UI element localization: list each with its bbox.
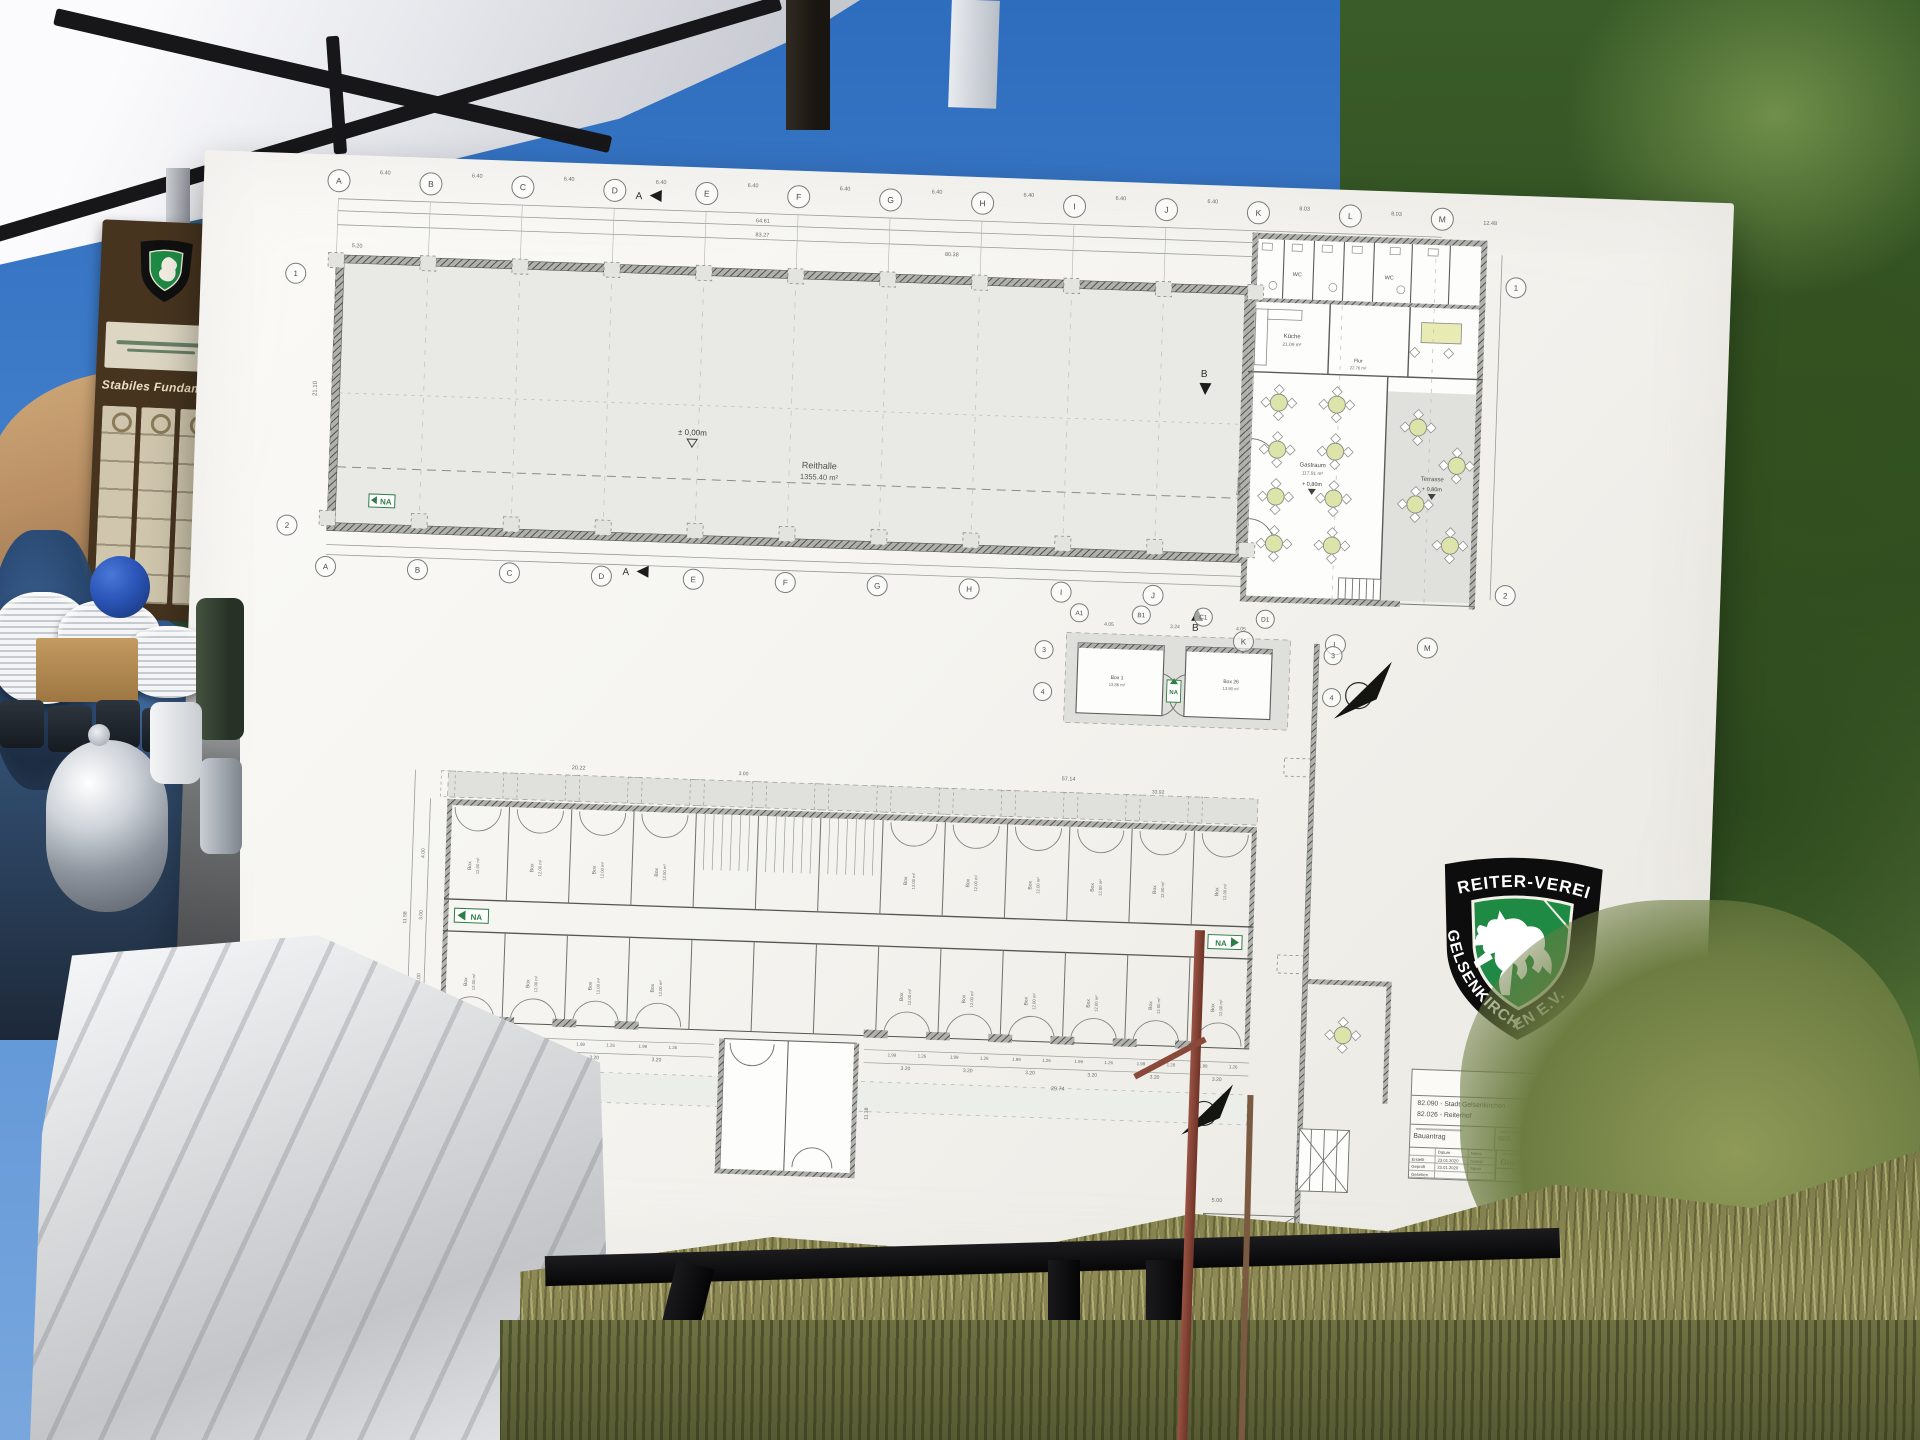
tack-room-shelf bbox=[774, 816, 776, 872]
grid-bubble: A bbox=[315, 556, 336, 577]
stall-wall bbox=[502, 933, 505, 1023]
flag-pole bbox=[948, 0, 1000, 109]
stall-door-arc bbox=[946, 1013, 993, 1038]
dim-label: 6.40 bbox=[1207, 199, 1218, 205]
stall-area: 12.00 m² bbox=[1222, 883, 1228, 900]
table-with-chairs bbox=[1324, 1017, 1361, 1054]
outdoor-boxes: Box 1 13.86 m² Box 26 13.80 m² NA 4.05 3… bbox=[1064, 620, 1393, 733]
tack-room-shelf bbox=[872, 820, 874, 876]
dim-label: 4.00 bbox=[420, 848, 426, 858]
dim-label: 6.40 bbox=[656, 180, 667, 186]
kitchen-counter bbox=[1254, 309, 1268, 365]
horseshoe-icon bbox=[111, 412, 132, 433]
stall-area: 12.00 m² bbox=[533, 975, 539, 992]
terrace-floor bbox=[1380, 391, 1476, 603]
round-table-icon bbox=[1409, 419, 1427, 437]
room-label: WC bbox=[1385, 275, 1394, 281]
grid-bubble: C bbox=[512, 176, 535, 199]
grid-bubble: K bbox=[1233, 631, 1254, 652]
emergency-exit-marker: NA bbox=[454, 908, 488, 923]
grid-line bbox=[704, 212, 706, 268]
stall-label: Box bbox=[1086, 998, 1092, 1007]
grid-bubble: 4 bbox=[1322, 688, 1341, 707]
column-pilaster bbox=[871, 529, 888, 545]
stall-label: Box bbox=[588, 981, 594, 990]
dim-label: 83.27 bbox=[755, 232, 769, 238]
column-pilaster bbox=[963, 533, 980, 549]
grid-line bbox=[612, 208, 614, 264]
wc-fixture-icon bbox=[1352, 246, 1362, 253]
grid-letter: D bbox=[598, 572, 604, 581]
grid-letter: D bbox=[612, 185, 618, 195]
hall-level: ± 0,00m bbox=[678, 428, 707, 438]
stall-label: Box bbox=[467, 861, 473, 870]
dim-label: 1.26 bbox=[669, 1045, 678, 1050]
stall-door-arc bbox=[1133, 1020, 1180, 1045]
dim-label: 1.26 bbox=[1042, 1058, 1051, 1063]
column-pilaster bbox=[420, 256, 437, 272]
blue-jug bbox=[90, 556, 150, 618]
grid-bubble: J bbox=[1143, 585, 1164, 606]
grid-bubble: F bbox=[775, 572, 796, 593]
stall-wall bbox=[1125, 955, 1128, 1045]
dimension-line bbox=[1490, 255, 1502, 600]
stall-door-arc bbox=[1202, 833, 1249, 858]
stall-label: Box bbox=[1148, 1001, 1154, 1010]
stall-wall bbox=[1187, 957, 1190, 1047]
sink-icon bbox=[1397, 286, 1405, 294]
wc-fixture-icon bbox=[1322, 245, 1332, 252]
room-area: 13.80 m² bbox=[1222, 686, 1239, 692]
stall-wall bbox=[755, 816, 758, 910]
column-pilaster bbox=[788, 268, 805, 284]
grid-bubble: L bbox=[1339, 205, 1362, 228]
stall-door-arc bbox=[454, 807, 501, 832]
stall-door-arc bbox=[1070, 1018, 1117, 1043]
sink-icon bbox=[1269, 281, 1277, 289]
cardboard-box bbox=[36, 638, 138, 702]
grid-bubble: G bbox=[879, 189, 902, 212]
grid-letter: K bbox=[1241, 637, 1247, 646]
wc-fixture-icon bbox=[1390, 247, 1400, 254]
svg-text:A: A bbox=[622, 567, 629, 578]
column-pilaster bbox=[1238, 542, 1255, 558]
stall-door-arc bbox=[517, 809, 564, 834]
room-label: Flur bbox=[1354, 358, 1363, 364]
stall-wall bbox=[880, 820, 883, 914]
stall-label: Box bbox=[1152, 885, 1158, 894]
dim-label: 3.20 bbox=[651, 1057, 661, 1063]
grid-line bbox=[796, 215, 798, 271]
white-pitcher bbox=[150, 702, 202, 784]
svg-text:NA: NA bbox=[1169, 690, 1179, 696]
tack-room-shelf bbox=[846, 819, 848, 875]
round-table-icon bbox=[1334, 1026, 1352, 1044]
round-table-icon bbox=[1323, 537, 1341, 555]
stall-door-arc bbox=[1077, 829, 1124, 854]
dim-label: 1.99 bbox=[888, 1052, 897, 1057]
stall-wall bbox=[693, 814, 696, 908]
stall-wall bbox=[1004, 824, 1007, 918]
stall-label: Box bbox=[899, 992, 905, 1001]
wall-stub bbox=[864, 1030, 888, 1039]
grid-bubble: A bbox=[328, 169, 351, 192]
round-table-icon bbox=[1448, 457, 1466, 475]
grid-bubble: G bbox=[867, 575, 888, 596]
fence-gate-grid bbox=[1297, 1129, 1349, 1193]
grid-letter: I bbox=[1060, 588, 1063, 597]
stall-wall bbox=[1191, 831, 1194, 925]
stall-wall bbox=[938, 948, 941, 1038]
grid-letter: M bbox=[1439, 214, 1446, 224]
tack-room-shelf bbox=[801, 817, 803, 873]
grid-bubble: M bbox=[1417, 638, 1438, 659]
tack-room-shelf bbox=[837, 819, 839, 875]
grid-letter: H bbox=[966, 585, 972, 594]
emergency-exit-marker: NA bbox=[1208, 934, 1242, 949]
chair-icon bbox=[1338, 1017, 1348, 1027]
stall-door-arc bbox=[890, 822, 937, 847]
grid-letter: I bbox=[1073, 201, 1076, 211]
stall-area: 12.00 m² bbox=[969, 990, 975, 1007]
dim-label: 8.03 bbox=[1299, 206, 1310, 212]
fence-post bbox=[1284, 758, 1311, 777]
room-label: Gastraum bbox=[1299, 462, 1326, 469]
wc-fixture-icon bbox=[1262, 243, 1272, 250]
column-pilaster bbox=[319, 510, 336, 526]
dim-label: 3.20 bbox=[1087, 1072, 1097, 1078]
stall-label: Box bbox=[463, 977, 469, 986]
riding-hall: Reithalle 1355.40 m² ± 0,00m 5.20 21.10 … bbox=[308, 242, 1251, 562]
grid-letter: M bbox=[1424, 644, 1431, 653]
tack-room-shelf bbox=[783, 817, 785, 873]
wall-stub bbox=[1113, 1038, 1137, 1047]
dim-label: 6.40 bbox=[748, 183, 759, 189]
stall-area: 12.00 m² bbox=[911, 872, 917, 889]
tack-room-shelf bbox=[703, 814, 705, 870]
grid-letter: C1 bbox=[1199, 614, 1208, 621]
wc-fixture-icon bbox=[1292, 244, 1302, 251]
column-pilaster bbox=[1064, 278, 1081, 294]
grid-letter: 1 bbox=[293, 269, 298, 278]
room-label: Box 1 bbox=[1111, 675, 1124, 681]
grid-line bbox=[980, 221, 982, 277]
dim-label: 1.99 bbox=[576, 1042, 585, 1047]
tack-room-shelf bbox=[828, 818, 830, 874]
round-table-icon bbox=[1265, 535, 1283, 553]
room-label: Küche bbox=[1284, 334, 1302, 341]
stall-area: 12.00 m² bbox=[1160, 881, 1166, 898]
dim-label: 6.40 bbox=[1023, 193, 1034, 199]
wall-stub bbox=[614, 1021, 638, 1030]
grid-bubble: 2 bbox=[1495, 585, 1516, 606]
stall-area: 12.00 m² bbox=[1218, 999, 1224, 1016]
wc-fixture-icon bbox=[1428, 249, 1438, 256]
hall-area: 1355.40 m² bbox=[800, 472, 839, 482]
grid-line bbox=[1072, 224, 1074, 280]
stall-area: 12.00 m² bbox=[537, 859, 543, 876]
grid-letter: 3 bbox=[1042, 647, 1046, 654]
dim-label: 11.38 bbox=[864, 1107, 870, 1120]
round-table-icon bbox=[1268, 441, 1286, 459]
chair-icon bbox=[1351, 1031, 1361, 1041]
grid-letter: 2 bbox=[1503, 591, 1508, 600]
construction-site-photo: Stabiles Fundament bbox=[0, 0, 1920, 1440]
stall-wall bbox=[813, 944, 816, 1034]
stall-area: 12.00 m² bbox=[658, 979, 664, 996]
grid-letter: E bbox=[704, 189, 710, 199]
grid-letter: F bbox=[796, 192, 802, 202]
tack-room-shelf bbox=[739, 815, 741, 871]
grid-letter: 4 bbox=[1041, 689, 1045, 696]
emergency-exit-marker: NA bbox=[1166, 678, 1181, 702]
round-table-icon bbox=[1328, 396, 1346, 414]
stall-wall bbox=[1000, 950, 1003, 1040]
grid-letter: F bbox=[783, 578, 788, 587]
dim-label: 1.99 bbox=[639, 1044, 648, 1049]
stall-label: Box bbox=[592, 865, 598, 874]
stall-label: Box bbox=[965, 878, 971, 887]
column-pilaster bbox=[696, 265, 713, 281]
column-pilaster bbox=[512, 259, 529, 275]
stall-area: 12.00 m² bbox=[599, 861, 605, 878]
grid-letter: H bbox=[979, 198, 985, 208]
grid-letter: L bbox=[1348, 211, 1353, 221]
grid-bubble: H bbox=[971, 192, 994, 215]
dim-label: 3.00 bbox=[418, 910, 424, 920]
level-label: + 0,80m bbox=[1302, 481, 1323, 488]
stall-label: Box bbox=[654, 867, 660, 876]
round-table-icon bbox=[1325, 490, 1343, 508]
tack-room-shelf bbox=[766, 816, 768, 872]
svg-text:B: B bbox=[1201, 369, 1208, 380]
grid-letter: 1 bbox=[1514, 284, 1519, 293]
room-label: Box 26 bbox=[1223, 679, 1239, 686]
dim-label: 33.92 bbox=[1152, 789, 1165, 795]
grid-letter: D1 bbox=[1261, 616, 1270, 623]
round-table-icon bbox=[1267, 488, 1285, 506]
stall-wall bbox=[876, 946, 879, 1036]
grid-line bbox=[428, 202, 430, 258]
dry-grass-front bbox=[500, 1320, 1920, 1440]
svg-text:A: A bbox=[635, 191, 642, 202]
column-pilaster bbox=[972, 275, 989, 291]
room-area: 22.76 m² bbox=[1350, 365, 1367, 371]
grid-bubble: E bbox=[683, 569, 704, 590]
dim-label: 6.40 bbox=[380, 170, 391, 176]
dim-label: 3.20 bbox=[963, 1068, 973, 1074]
dim-label: 3.20 bbox=[1025, 1070, 1035, 1076]
grid-bubble: A1 bbox=[1070, 603, 1089, 622]
stall-label: Box bbox=[525, 979, 531, 988]
small-pot bbox=[200, 758, 242, 854]
stall-area: 12.00 m² bbox=[973, 874, 979, 891]
stall-area: 12.00 m² bbox=[1098, 879, 1104, 896]
dim-label: 1.26 bbox=[1229, 1064, 1238, 1069]
column-pilaster bbox=[328, 252, 345, 268]
grid-letter: J bbox=[1151, 591, 1155, 600]
dim-label: 57.14 bbox=[1062, 776, 1076, 782]
dim-label: 8.03 bbox=[1391, 211, 1402, 217]
dim-label: 11.58 bbox=[402, 911, 408, 924]
tack-room-shelf bbox=[792, 817, 794, 873]
stall-label: Box bbox=[903, 876, 909, 885]
grid-bubble: 2 bbox=[277, 515, 298, 536]
svg-text:NA: NA bbox=[1215, 939, 1227, 948]
grid-bubble: B bbox=[420, 173, 443, 196]
tack-room-shelf bbox=[854, 819, 856, 875]
stall-area: 12.00 m² bbox=[595, 977, 601, 994]
wall-stub bbox=[1050, 1036, 1074, 1045]
grid-line bbox=[336, 199, 338, 255]
grid-letter: K bbox=[1255, 208, 1261, 218]
dim-label: 5.20 bbox=[352, 243, 363, 249]
horseshoe-icon bbox=[150, 414, 171, 435]
stall-area: 12.00 m² bbox=[475, 857, 481, 874]
column-pilaster bbox=[1247, 284, 1264, 300]
grid-bubble: I bbox=[1063, 195, 1086, 218]
grid-bubble: I bbox=[1051, 582, 1072, 603]
grid-letter: A bbox=[336, 176, 342, 186]
bushes-front-right bbox=[1688, 0, 1920, 1440]
stall-door-arc bbox=[953, 825, 1000, 850]
section-marker-a-top: A bbox=[635, 189, 661, 203]
mug bbox=[0, 700, 44, 748]
grid-letter: B bbox=[428, 179, 434, 189]
stall-label: Box bbox=[1090, 883, 1096, 892]
room-area: 21.09 m² bbox=[1282, 342, 1302, 349]
grid-bubble: D bbox=[603, 179, 626, 202]
room-label: Terrasse bbox=[1421, 477, 1445, 484]
fence-post bbox=[1277, 955, 1304, 974]
dim-label: 12.48 bbox=[1483, 221, 1497, 227]
stall-area: 12.00 m² bbox=[1093, 995, 1099, 1012]
round-table-icon bbox=[1326, 443, 1344, 461]
dim-label: 6.40 bbox=[472, 173, 483, 179]
hall-label: Reithalle bbox=[802, 460, 837, 471]
grid-letter: J bbox=[1164, 205, 1169, 215]
grid-letter: A1 bbox=[1075, 610, 1084, 617]
sink-icon bbox=[1329, 283, 1337, 291]
grid-letter: B bbox=[415, 565, 421, 574]
grid-bubble: 3 bbox=[1035, 640, 1054, 659]
dim-label: 6.40 bbox=[1115, 196, 1126, 202]
stall-door-arc bbox=[1008, 1016, 1055, 1041]
dim-label: 3.00 bbox=[739, 771, 749, 777]
svg-text:NA: NA bbox=[380, 497, 392, 506]
grid-bubble: J bbox=[1155, 198, 1178, 221]
dim-label: 4.05 bbox=[1104, 622, 1114, 628]
grid-bubble: 3 bbox=[1324, 646, 1343, 665]
stall-door-arc bbox=[510, 998, 557, 1023]
stall-area: 12.00 m² bbox=[907, 988, 913, 1005]
round-table-icon bbox=[1441, 537, 1459, 555]
round-table-icon bbox=[1270, 394, 1288, 412]
column-pilaster bbox=[880, 272, 897, 288]
grid-letter: 4 bbox=[1329, 695, 1333, 702]
stall-wall bbox=[1129, 829, 1132, 923]
wall-stub bbox=[988, 1034, 1012, 1043]
dim-label: 21.10 bbox=[312, 380, 319, 396]
tack-room-shelf bbox=[748, 815, 750, 871]
grid-bubble: D1 bbox=[1256, 610, 1275, 629]
tack-room-shelf bbox=[712, 814, 714, 870]
grid-bubble: M bbox=[1431, 208, 1454, 231]
dim-label: 1.99 bbox=[1074, 1059, 1083, 1064]
grid-bubble: F bbox=[787, 185, 810, 208]
grid-bubble: 4 bbox=[1033, 682, 1052, 701]
stall-label: Box bbox=[1210, 1003, 1216, 1012]
wall-stub bbox=[926, 1032, 950, 1041]
dim-label: 3.20 bbox=[1212, 1077, 1222, 1083]
stall-wall bbox=[564, 935, 567, 1025]
dim-label: 6.40 bbox=[931, 189, 942, 195]
grid-bubble: B bbox=[407, 559, 428, 580]
stall-wall bbox=[506, 807, 509, 901]
column-pilaster bbox=[604, 262, 621, 278]
grid-bubble: K bbox=[1247, 201, 1270, 224]
stall-label: Box bbox=[650, 983, 656, 992]
dim-label: 1.26 bbox=[1104, 1060, 1113, 1065]
stall-wall bbox=[942, 822, 945, 916]
emergency-exit-marker: NA bbox=[369, 494, 395, 508]
stall-wall bbox=[1067, 827, 1070, 921]
column-pilaster bbox=[779, 526, 796, 542]
hall-floor bbox=[333, 261, 1251, 557]
column-pilaster bbox=[411, 513, 428, 529]
column-pilaster bbox=[1146, 539, 1163, 555]
dim-label: 64.61 bbox=[756, 218, 770, 224]
stall-wall bbox=[818, 818, 821, 912]
tack-room-shelf bbox=[730, 815, 732, 871]
stall-door-arc bbox=[1139, 831, 1186, 856]
tack-room-shelf bbox=[810, 818, 812, 874]
grid-line bbox=[1164, 228, 1166, 284]
section-marker-a-bottom: A bbox=[622, 565, 648, 579]
dim-label: 3.24 bbox=[1170, 624, 1180, 630]
grid-line bbox=[888, 218, 890, 274]
stall-label: Box bbox=[1027, 880, 1033, 889]
stall-label: Box bbox=[961, 994, 967, 1003]
column-pilaster bbox=[687, 523, 704, 539]
grid-letter: B1 bbox=[1137, 612, 1146, 619]
dim-label: 1.99 bbox=[1137, 1061, 1146, 1066]
dim-label: 1.26 bbox=[918, 1053, 927, 1058]
wood-post bbox=[786, 0, 830, 130]
grid-bubble: E bbox=[695, 182, 718, 205]
stall-wall bbox=[751, 942, 754, 1032]
dim-label: 1.99 bbox=[950, 1055, 959, 1060]
stall-area: 12.00 m² bbox=[662, 864, 668, 881]
stall-wall bbox=[627, 937, 630, 1027]
grid-bubble: B1 bbox=[1132, 606, 1151, 625]
stall-wall bbox=[689, 939, 692, 1029]
stall-area: 12.00 m² bbox=[1035, 877, 1041, 894]
stall-wall bbox=[569, 809, 572, 903]
round-table-icon bbox=[1407, 496, 1425, 514]
dim-label: 20.22 bbox=[572, 765, 586, 771]
grid-line bbox=[520, 205, 522, 261]
dim-label: 3.20 bbox=[1150, 1075, 1160, 1081]
room-label: Eingang bbox=[1236, 477, 1243, 496]
dim-label: 3.20 bbox=[900, 1066, 910, 1072]
column-pilaster bbox=[503, 517, 520, 533]
dim-label: 6.40 bbox=[840, 186, 851, 192]
room-label: WC bbox=[1293, 272, 1302, 278]
grid-bubble: C bbox=[499, 563, 520, 584]
stable-extension: 11.38 bbox=[715, 1038, 873, 1178]
banner-crest-icon bbox=[135, 235, 196, 309]
